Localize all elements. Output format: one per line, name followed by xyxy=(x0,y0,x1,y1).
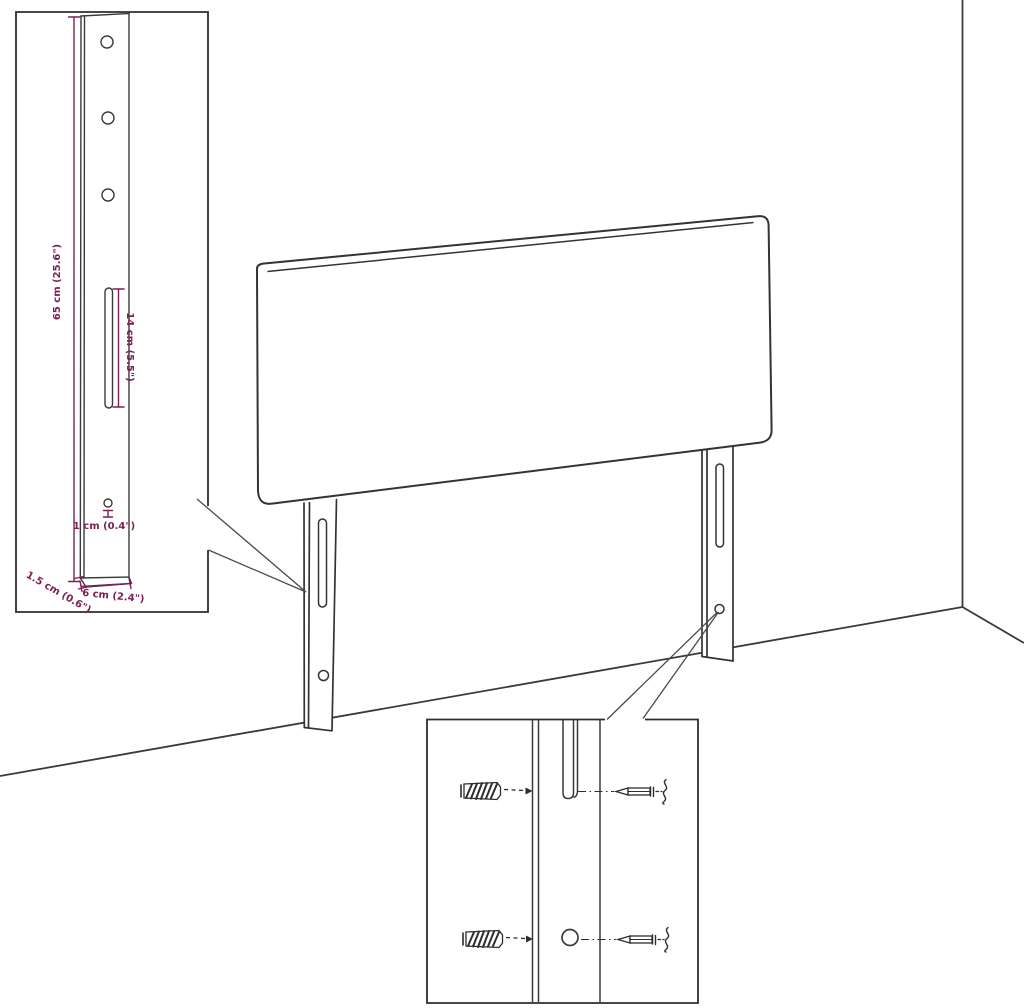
bracket-slot xyxy=(105,288,113,408)
headboard-outline xyxy=(257,216,772,504)
hardware-leg-hole xyxy=(562,930,578,946)
bracket-inset-leaders xyxy=(197,499,306,592)
bracket-drawing xyxy=(80,14,131,588)
left-leg xyxy=(304,500,337,731)
bracket-holes xyxy=(101,36,114,507)
floor-line-right xyxy=(963,607,1024,643)
product-diagram: 65 cm (25.6") 14 cm (5.5") 1 cm (0.4") 1… xyxy=(0,0,1024,1008)
right-leg-hole xyxy=(715,605,724,614)
hardware-leg-drawing xyxy=(533,720,601,1002)
dim-leg-height: 65 cm (25.6") xyxy=(52,244,63,320)
headboard-panel xyxy=(257,216,772,504)
hardware-detail-inset xyxy=(427,720,698,1004)
screw-icon xyxy=(618,928,669,953)
left-leg-hole xyxy=(319,671,329,681)
dimension-lines xyxy=(69,17,132,592)
bracket-detail-inset: 65 cm (25.6") 14 cm (5.5") 1 cm (0.4") 1… xyxy=(16,12,208,616)
arrow-right-icon xyxy=(526,788,533,795)
screw-icon xyxy=(616,780,667,805)
headboard-assembly-diagram: 65 cm (25.6") 14 cm (5.5") 1 cm (0.4") 1… xyxy=(0,0,1024,1008)
right-leg-slot xyxy=(716,464,724,547)
hardware-row-upper xyxy=(461,780,667,805)
floor-line-left xyxy=(0,607,963,776)
dim-slot-length: 14 cm (5.5") xyxy=(124,312,135,381)
hardware-leg-slot xyxy=(563,720,574,799)
wall-plug-icon xyxy=(463,931,503,948)
dim-hole-size: 1 cm (0.4") xyxy=(73,521,135,532)
wall-plug-icon xyxy=(461,783,501,800)
bracket-small-hole xyxy=(104,499,112,507)
dim-leg-width: 6 cm (2.4") xyxy=(82,588,145,605)
left-leg-slot xyxy=(319,519,327,607)
